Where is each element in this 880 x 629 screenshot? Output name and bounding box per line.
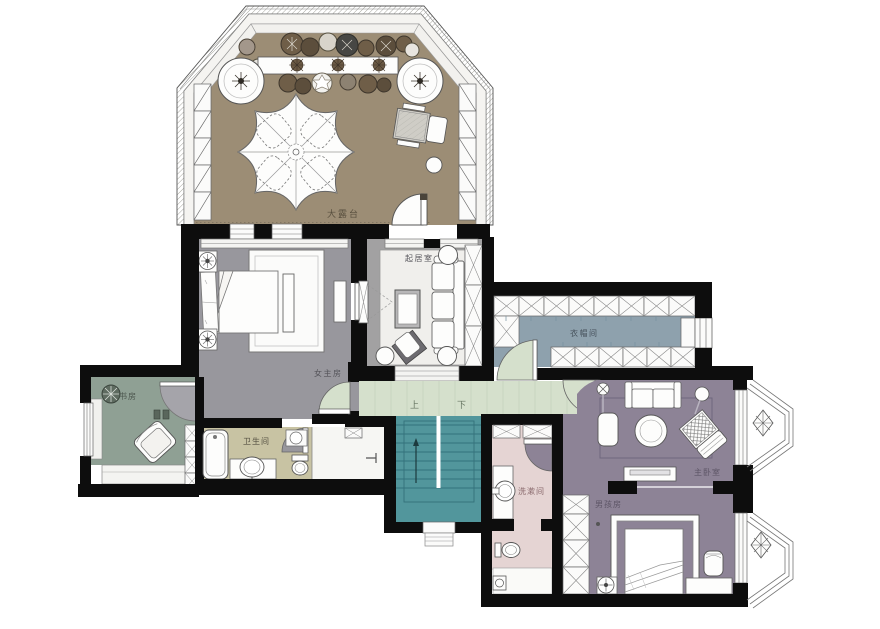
svg-text:女主房: 女主房 <box>314 368 343 378</box>
svg-text:书房: 书房 <box>119 391 137 401</box>
svg-text:男孩房: 男孩房 <box>595 499 622 509</box>
svg-text:起居室: 起居室 <box>405 253 434 263</box>
svg-text:卫生间: 卫生间 <box>243 436 270 446</box>
svg-text:下: 下 <box>457 400 466 410</box>
svg-text:衣帽间: 衣帽间 <box>570 328 599 338</box>
svg-text:主卧室: 主卧室 <box>694 467 721 477</box>
svg-text:上: 上 <box>410 400 419 410</box>
svg-text:大露台: 大露台 <box>327 208 360 219</box>
svg-text:洗漱间: 洗漱间 <box>518 486 545 496</box>
